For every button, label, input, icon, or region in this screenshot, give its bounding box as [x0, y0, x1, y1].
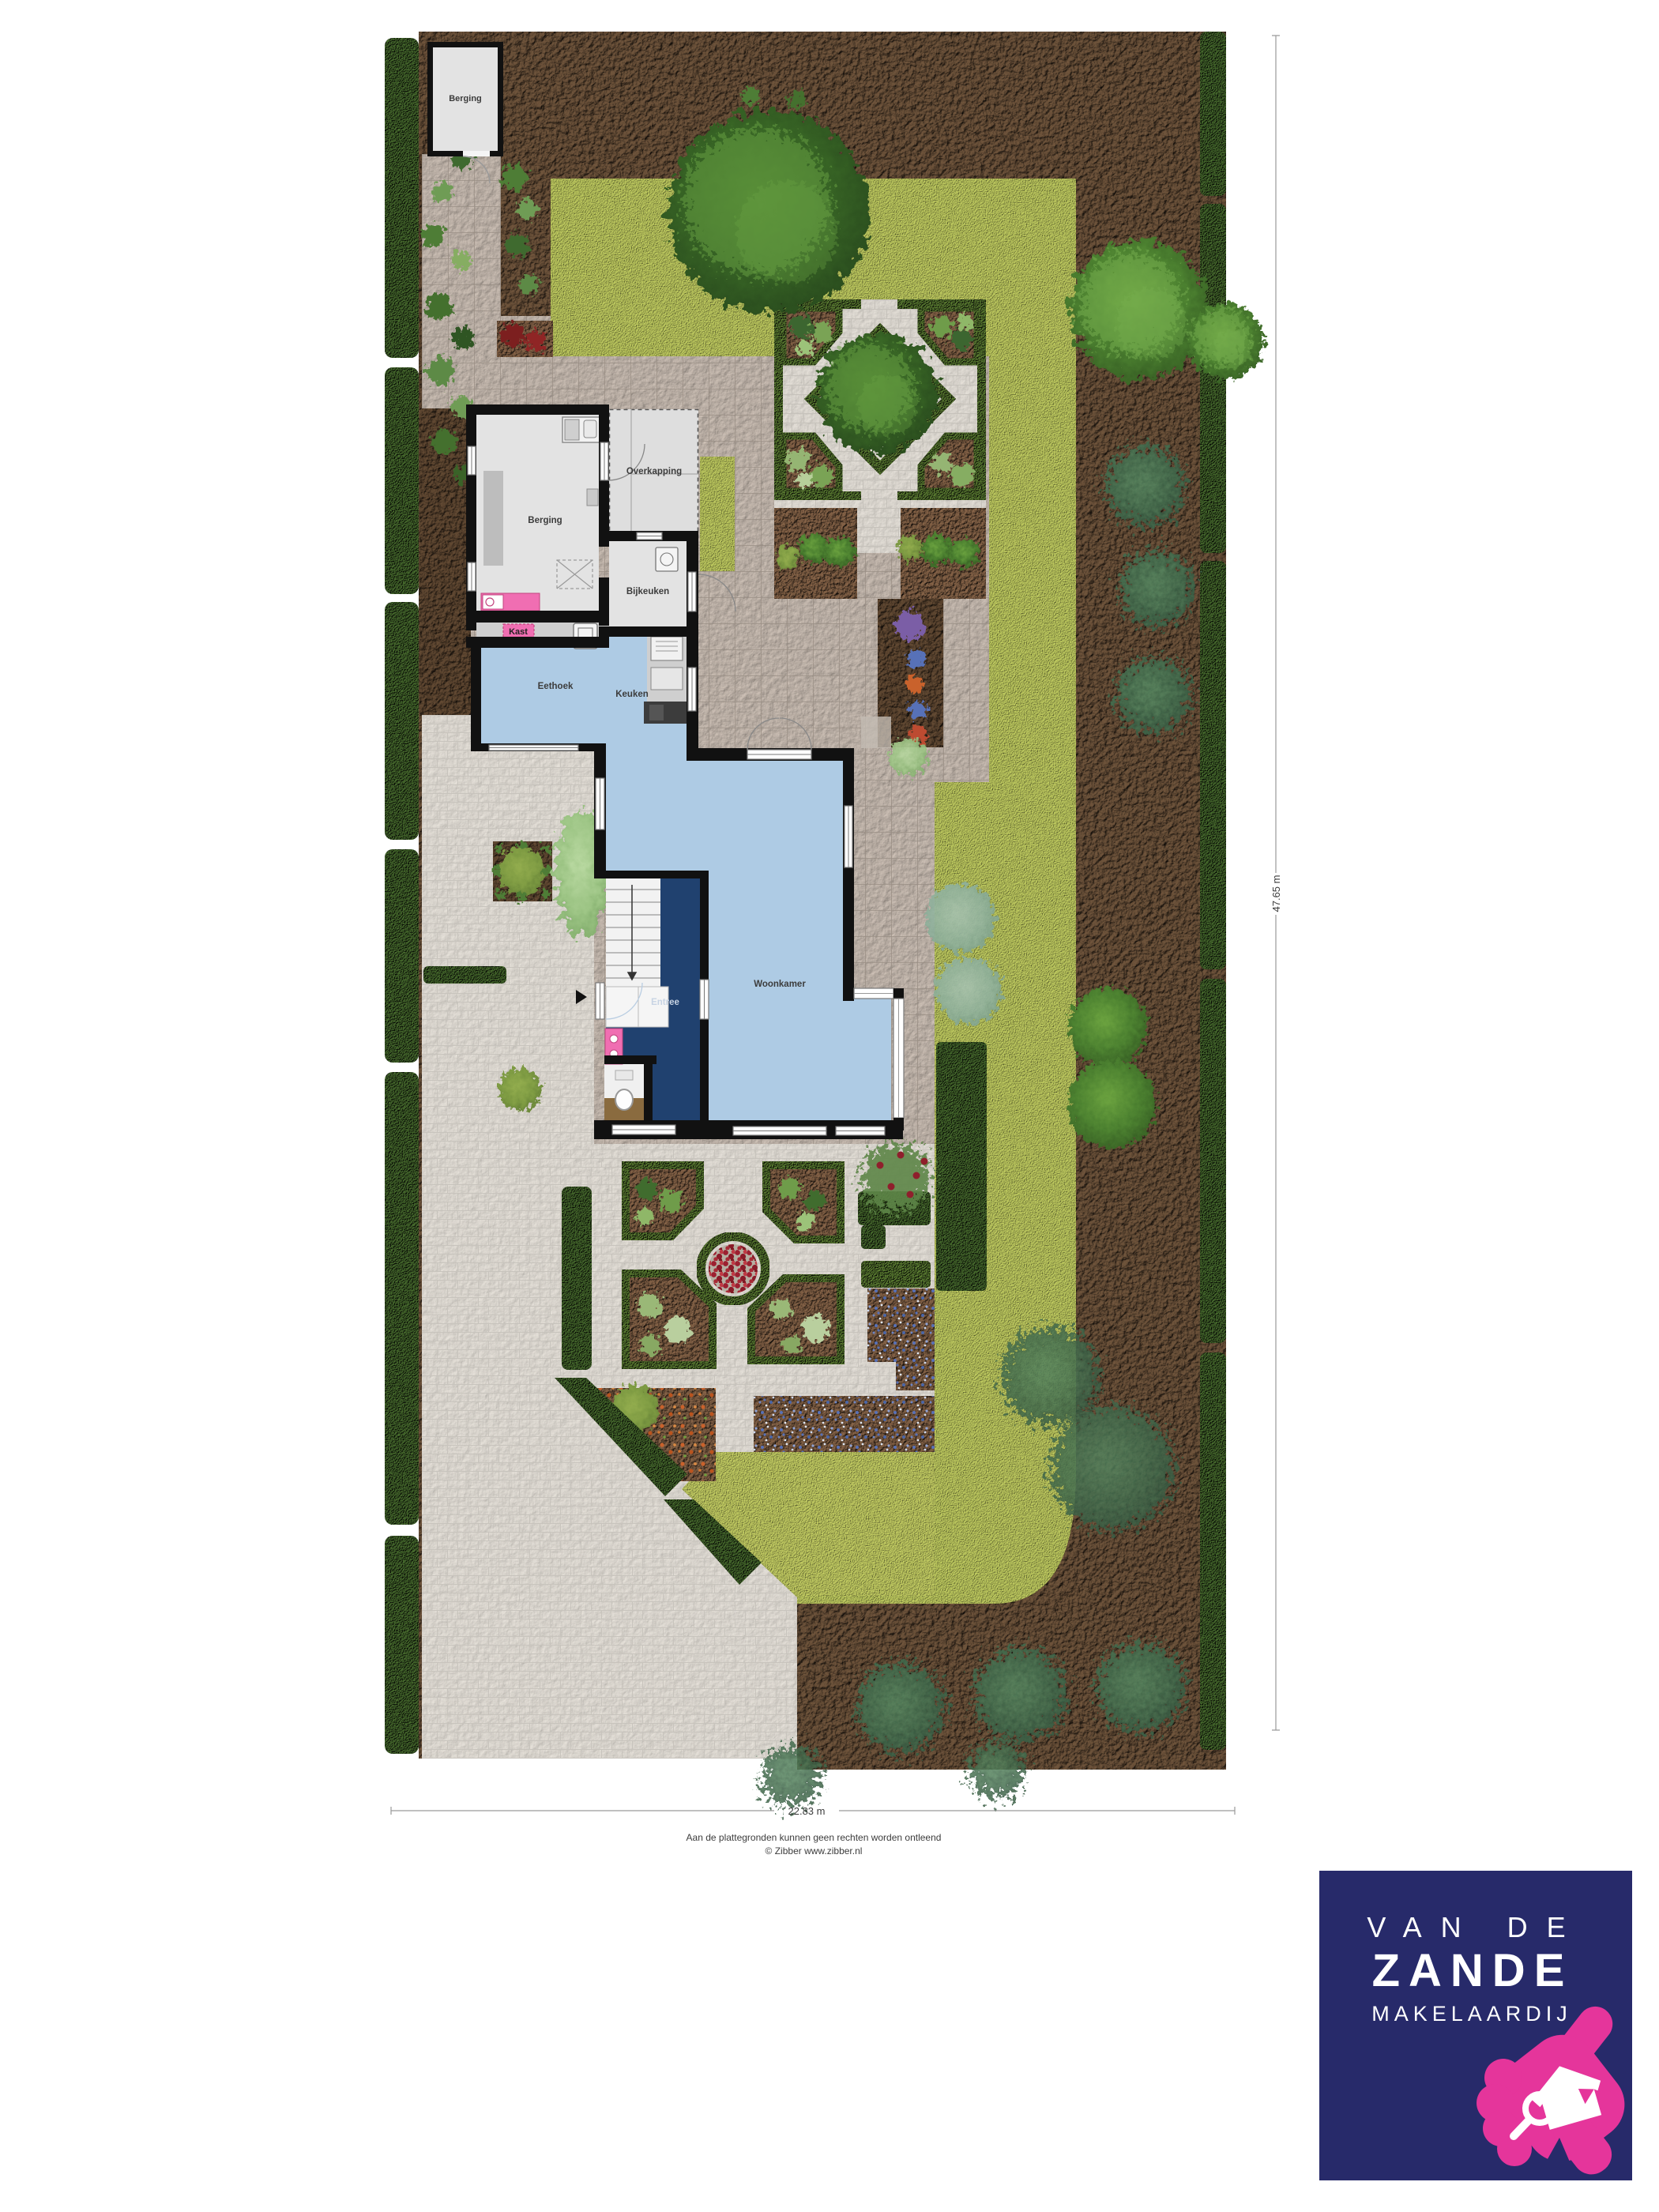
svg-text:22.83 m: 22.83 m: [788, 1805, 826, 1817]
svg-text:© Zibber www.zibber.nl: © Zibber www.zibber.nl: [766, 1845, 863, 1856]
svg-text:Berging: Berging: [449, 94, 482, 103]
svg-text:Bijkeuken: Bijkeuken: [626, 587, 669, 596]
svg-text:47.65 m: 47.65 m: [1270, 875, 1282, 912]
svg-text:Aan de plattegronden kunnen ge: Aan de plattegronden kunnen geen rechten…: [687, 1832, 942, 1843]
svg-text:Entree: Entree: [651, 998, 679, 1007]
svg-text:Woonkamer: Woonkamer: [754, 980, 806, 989]
svg-text:VAN DE: VAN DE: [1367, 1911, 1584, 1943]
svg-text:Overkapping: Overkapping: [626, 467, 682, 476]
svg-text:ZANDE: ZANDE: [1372, 1945, 1574, 1996]
svg-text:MAKELAARDIJ: MAKELAARDIJ: [1371, 2002, 1572, 2026]
svg-text:Eethoek: Eethoek: [538, 682, 574, 691]
svg-text:Kast: Kast: [509, 627, 528, 637]
svg-text:Berging: Berging: [528, 516, 562, 525]
svg-text:Keuken: Keuken: [615, 690, 649, 699]
